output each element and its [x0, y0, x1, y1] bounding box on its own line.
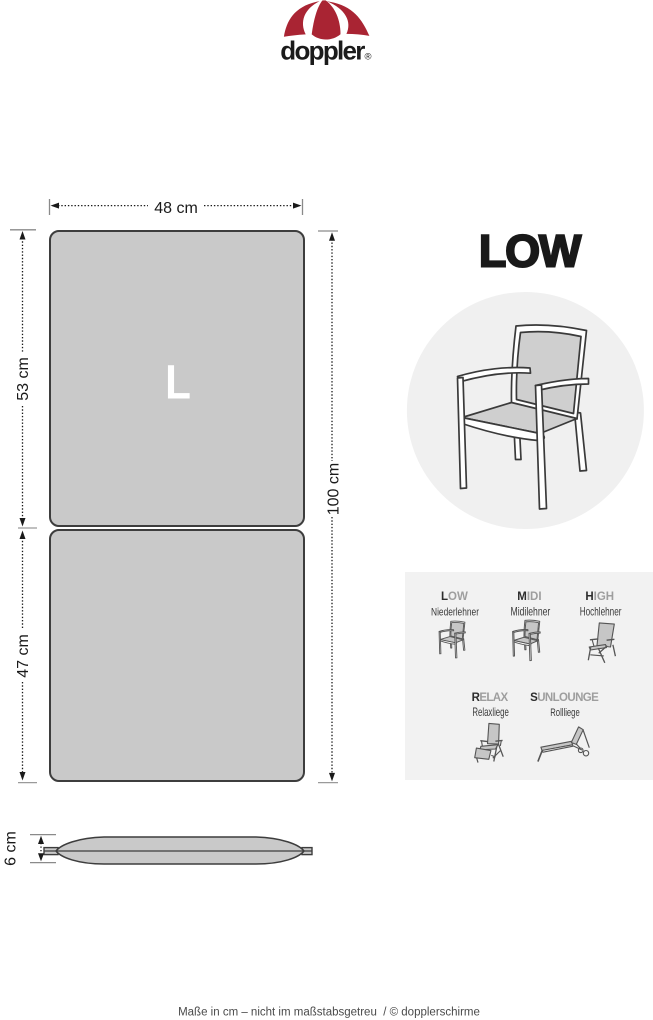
svg-text:6 cm: 6 cm [2, 831, 19, 866]
svg-text:L: L [165, 355, 191, 409]
svg-text:SUNLOUNGE: SUNLOUNGE [530, 692, 599, 704]
svg-text:RELAX: RELAX [472, 692, 509, 704]
svg-text:Rollliege: Rollliege [550, 707, 579, 720]
svg-text:doppler: doppler [280, 36, 365, 66]
svg-text:Relaxliege: Relaxliege [472, 707, 509, 720]
svg-text:HIGH: HIGH [585, 591, 614, 603]
svg-text:Midilehner: Midilehner [511, 606, 551, 618]
svg-text:MIDI: MIDI [517, 591, 541, 603]
svg-text:LOW: LOW [479, 226, 582, 277]
svg-text:47 cm: 47 cm [15, 634, 32, 678]
svg-text:®: ® [365, 52, 372, 63]
svg-text:Maße in cm – nicht im maßstabs: Maße in cm – nicht im maßstabsgetreu / ©… [178, 1007, 480, 1019]
svg-text:48 cm: 48 cm [154, 200, 198, 217]
svg-text:Niederlehner: Niederlehner [431, 606, 480, 619]
svg-text:100 cm: 100 cm [326, 463, 343, 515]
svg-text:LOW: LOW [441, 591, 468, 603]
svg-text:Hochlehner: Hochlehner [580, 606, 622, 619]
svg-text:53 cm: 53 cm [15, 357, 32, 401]
